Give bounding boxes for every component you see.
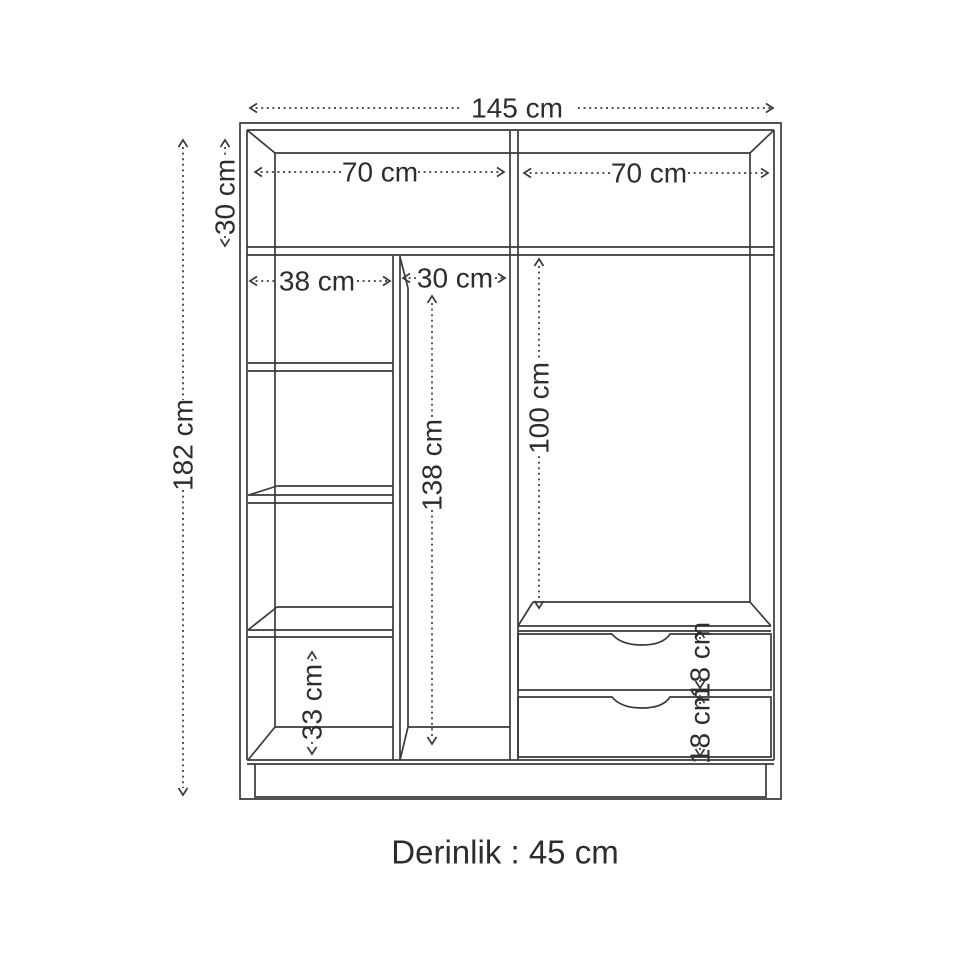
plinth <box>255 764 766 797</box>
center-divider <box>510 131 518 760</box>
dim-label-lower-drawer-height: 18 cm <box>685 688 716 764</box>
dim-label-hanging-section-height: 100 cm <box>524 362 555 454</box>
dim-label-top-section-height: 30 cm <box>210 159 241 235</box>
dim-top-right-compartment-width: 70 cm <box>524 158 768 189</box>
dim-label-middle-column-width: 30 cm <box>417 263 493 294</box>
left-column-shelf-2 <box>248 486 393 503</box>
left-divider <box>393 256 400 760</box>
dim-total-width: 145 cm <box>250 93 773 124</box>
dim-label-bottom-left-compartment-height: 33 cm <box>297 664 328 740</box>
dim-label-left-column-width: 38 cm <box>279 266 355 297</box>
wardrobe-dimension-diagram: 145 cm 70 cm 70 cm 38 cm 30 cm 182 cm <box>0 0 960 960</box>
depth-caption: Derinlik : 45 cm <box>391 834 618 871</box>
dim-bottom-left-compartment-height: 33 cm <box>297 652 328 754</box>
drawer-shelf <box>518 602 771 631</box>
dim-label-upper-drawer-height: 18 cm <box>685 622 716 698</box>
dim-upper-drawer-height: 18 cm <box>685 622 716 698</box>
dim-top-section-height: 30 cm <box>210 140 241 246</box>
left-column-shelf-1 <box>248 363 393 371</box>
dim-label-total-width: 145 cm <box>471 93 563 124</box>
dim-label-middle-column-height: 138 cm <box>417 419 448 511</box>
arrowheads <box>428 296 437 744</box>
technical-drawing-page: 145 cm 70 cm 70 cm 38 cm 30 cm 182 cm <box>0 0 960 960</box>
upper-drawer-front <box>518 634 771 690</box>
dim-middle-column-height: 138 cm <box>417 296 448 744</box>
dim-lower-drawer-height: 18 cm <box>685 688 716 764</box>
dim-label-top-left-compartment-width: 70 cm <box>342 157 418 188</box>
dim-hanging-section-height: 100 cm <box>524 259 555 608</box>
dim-label-total-height: 182 cm <box>168 399 199 491</box>
lower-drawer-front <box>518 697 771 757</box>
dim-left-column-width: 38 cm <box>250 266 390 297</box>
dim-middle-column-width: 30 cm <box>403 263 505 294</box>
dim-label-top-right-compartment-width: 70 cm <box>611 158 687 189</box>
left-column-shelf-3 <box>248 607 393 637</box>
dim-total-height: 182 cm <box>168 140 199 795</box>
dim-top-left-compartment-width: 70 cm <box>255 157 504 188</box>
